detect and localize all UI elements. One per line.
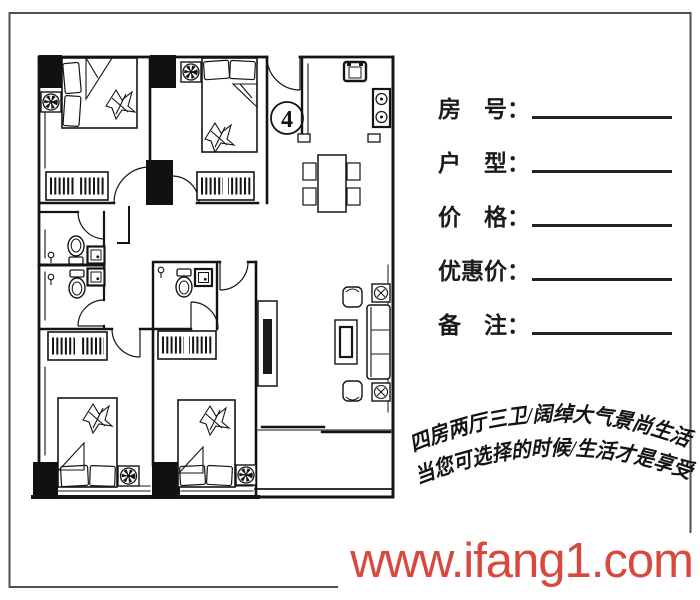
bedroom-3 bbox=[48, 332, 139, 487]
floorplan-flyer: 4 四房两厅三卫/阔绰大气景尚生活 当您可选择的时候/生活才是享受 房 号： 户… bbox=[0, 0, 700, 600]
bathroom-2 bbox=[48, 269, 104, 299]
bathroom-3 bbox=[158, 267, 212, 297]
armchair bbox=[343, 287, 362, 307]
bedroom1-door bbox=[114, 167, 150, 203]
watermark-url: www.ifang1.com bbox=[338, 533, 695, 592]
unit-number-badge: 4 bbox=[271, 102, 303, 134]
wardrobe-2 bbox=[197, 172, 254, 200]
wardrobe-1 bbox=[46, 172, 108, 200]
sofa bbox=[367, 305, 390, 379]
kitchen-sink bbox=[344, 62, 366, 81]
side-table bbox=[372, 284, 390, 302]
dining-set bbox=[303, 155, 360, 212]
bath2-door bbox=[78, 300, 104, 326]
slogan: 四房两厅三卫/阔绰大气景尚生活 当您可选择的时候/生活才是享受 bbox=[406, 402, 698, 489]
unit-number-text: 4 bbox=[281, 107, 293, 133]
bathroom-1 bbox=[48, 236, 104, 264]
armchair bbox=[343, 381, 362, 401]
bedroom-2 bbox=[181, 58, 257, 200]
bath1-door bbox=[78, 212, 104, 239]
tv-cabinet bbox=[258, 301, 277, 386]
bedroom2-door bbox=[172, 176, 199, 203]
floor-plan-image: 4 四房两厅三卫/阔绰大气景尚生活 当您可选择的时候/生活才是享受 bbox=[0, 0, 700, 600]
stove bbox=[373, 89, 390, 127]
kitchen bbox=[344, 62, 390, 127]
svg-text:当您可选择的时候/生活才是享受: 当您可选择的时候/生活才是享受 bbox=[411, 436, 698, 489]
wardrobe-4 bbox=[158, 331, 216, 359]
bedroom3-door bbox=[112, 329, 140, 357]
slogan-line-2: 当您可选择的时候/生活才是享受 bbox=[411, 436, 698, 489]
bath3-door bbox=[191, 302, 218, 329]
living-room-set bbox=[258, 284, 390, 401]
entry-door bbox=[267, 57, 300, 90]
wardrobe-3 bbox=[48, 332, 107, 360]
side-table bbox=[372, 383, 390, 401]
coffee-table bbox=[335, 320, 357, 364]
bedroom4-door bbox=[220, 262, 248, 290]
